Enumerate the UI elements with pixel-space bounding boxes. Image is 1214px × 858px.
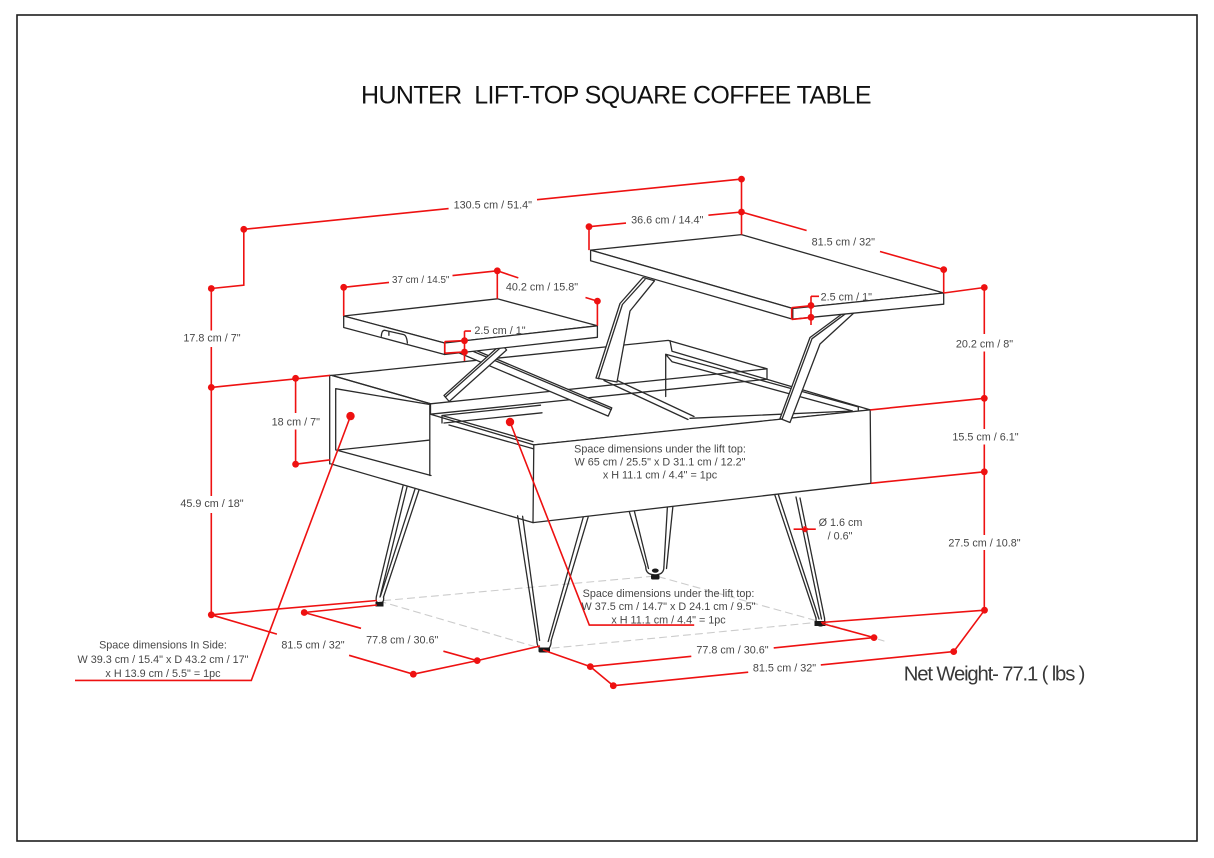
svg-text:81.5 cm / 32": 81.5 cm / 32" [281, 639, 344, 651]
svg-text:40.2 cm / 15.8": 40.2 cm / 15.8" [506, 282, 578, 294]
svg-text:20.2 cm / 8": 20.2 cm / 8" [956, 339, 1013, 351]
svg-text:2.5 cm / 1": 2.5 cm / 1" [821, 292, 872, 304]
svg-text:Space dimensions under the lif: Space dimensions under the lift top: [583, 588, 755, 600]
svg-text:Space dimensions under the lif: Space dimensions under the lift top: [574, 444, 746, 456]
svg-text:36.6 cm / 14.4": 36.6 cm / 14.4" [631, 214, 703, 226]
svg-text:18 cm / 7": 18 cm / 7" [272, 417, 320, 429]
svg-text:2.5 cm / 1": 2.5 cm / 1" [474, 325, 525, 337]
svg-text:W 65 cm / 25.5" x D 31.1 cm /: W 65 cm / 25.5" x D 31.1 cm / 12.2" [575, 457, 746, 469]
svg-text:Net Weight- 77.1 ( lbs ): Net Weight- 77.1 ( lbs ) [904, 664, 1085, 686]
svg-text:17.8 cm / 7": 17.8 cm / 7" [183, 333, 240, 345]
svg-text:W 37.5 cm / 14.7" x D 24.1 cm: W 37.5 cm / 14.7" x D 24.1 cm / 9.5" [582, 601, 756, 613]
svg-text:Space dimensions In Side:: Space dimensions In Side: [99, 640, 227, 652]
svg-text:130.5 cm / 51.4": 130.5 cm / 51.4" [454, 200, 532, 212]
svg-text:Ø 1.6 cm: Ø 1.6 cm [819, 517, 863, 529]
svg-text:W 39.3 cm / 15.4" x D 43.2 cm: W 39.3 cm / 15.4" x D 43.2 cm / 17" [78, 654, 249, 666]
svg-text:x H 11.1 cm / 4.4" = 1pc: x H 11.1 cm / 4.4" = 1pc [611, 614, 726, 626]
svg-text:/ 0.6": / 0.6" [828, 530, 853, 542]
svg-text:81.5 cm / 32": 81.5 cm / 32" [812, 237, 875, 249]
svg-text:81.5 cm / 32": 81.5 cm / 32" [753, 663, 816, 675]
svg-text:15.5 cm / 6.1": 15.5 cm / 6.1" [952, 432, 1018, 444]
svg-text:45.9 cm / 18": 45.9 cm / 18" [180, 498, 243, 510]
svg-text:x H 11.1 cm / 4.4" = 1pc: x H 11.1 cm / 4.4" = 1pc [603, 470, 718, 482]
svg-text:27.5 cm / 10.8": 27.5 cm / 10.8" [948, 538, 1020, 550]
svg-text:x H 13.9 cm / 5.5" = 1pc: x H 13.9 cm / 5.5" = 1pc [105, 668, 221, 680]
svg-text:77.8 cm / 30.6": 77.8 cm / 30.6" [696, 645, 768, 657]
svg-text:HUNTER LIFT-TOP SQUARE COFFEE: HUNTER LIFT-TOP SQUARE COFFEE TABLE [361, 82, 871, 110]
svg-text:77.8 cm / 30.6": 77.8 cm / 30.6" [366, 635, 438, 647]
svg-text:37 cm / 14.5": 37 cm / 14.5" [392, 275, 450, 286]
